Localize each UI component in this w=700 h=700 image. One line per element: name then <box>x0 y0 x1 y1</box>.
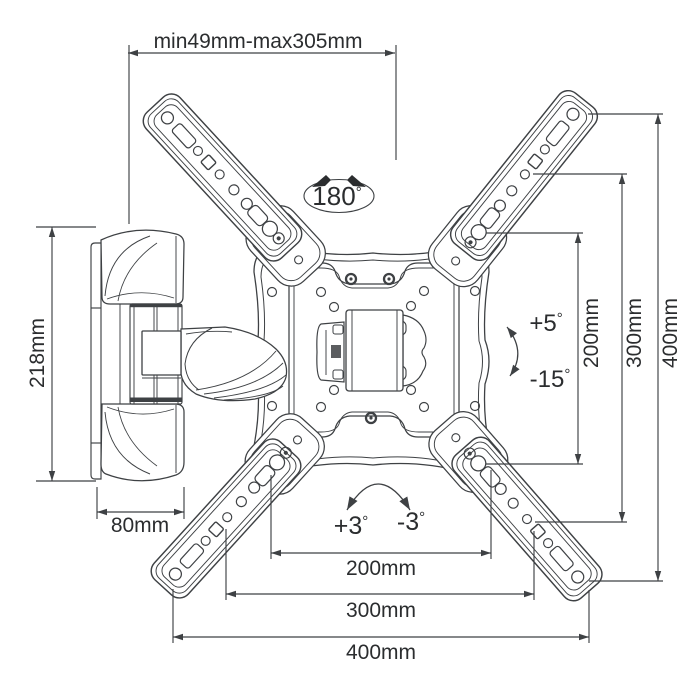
svg-text:min49mm-max305mm: min49mm-max305mm <box>154 30 363 53</box>
svg-text:200mm: 200mm <box>346 557 416 580</box>
svg-text:400mm: 400mm <box>659 298 682 368</box>
svg-text:300mm: 300mm <box>623 298 646 368</box>
svg-text:300mm: 300mm <box>346 599 416 622</box>
svg-text:+3°: +3° <box>334 512 369 540</box>
svg-text:200mm: 200mm <box>580 298 603 368</box>
svg-text:80mm: 80mm <box>111 514 169 537</box>
svg-text:400mm: 400mm <box>346 641 416 664</box>
svg-text:218mm: 218mm <box>26 318 49 388</box>
svg-text:-15°: -15° <box>530 366 571 393</box>
svg-text:+5°: +5° <box>529 310 562 337</box>
svg-text:-3°: -3° <box>397 508 425 536</box>
